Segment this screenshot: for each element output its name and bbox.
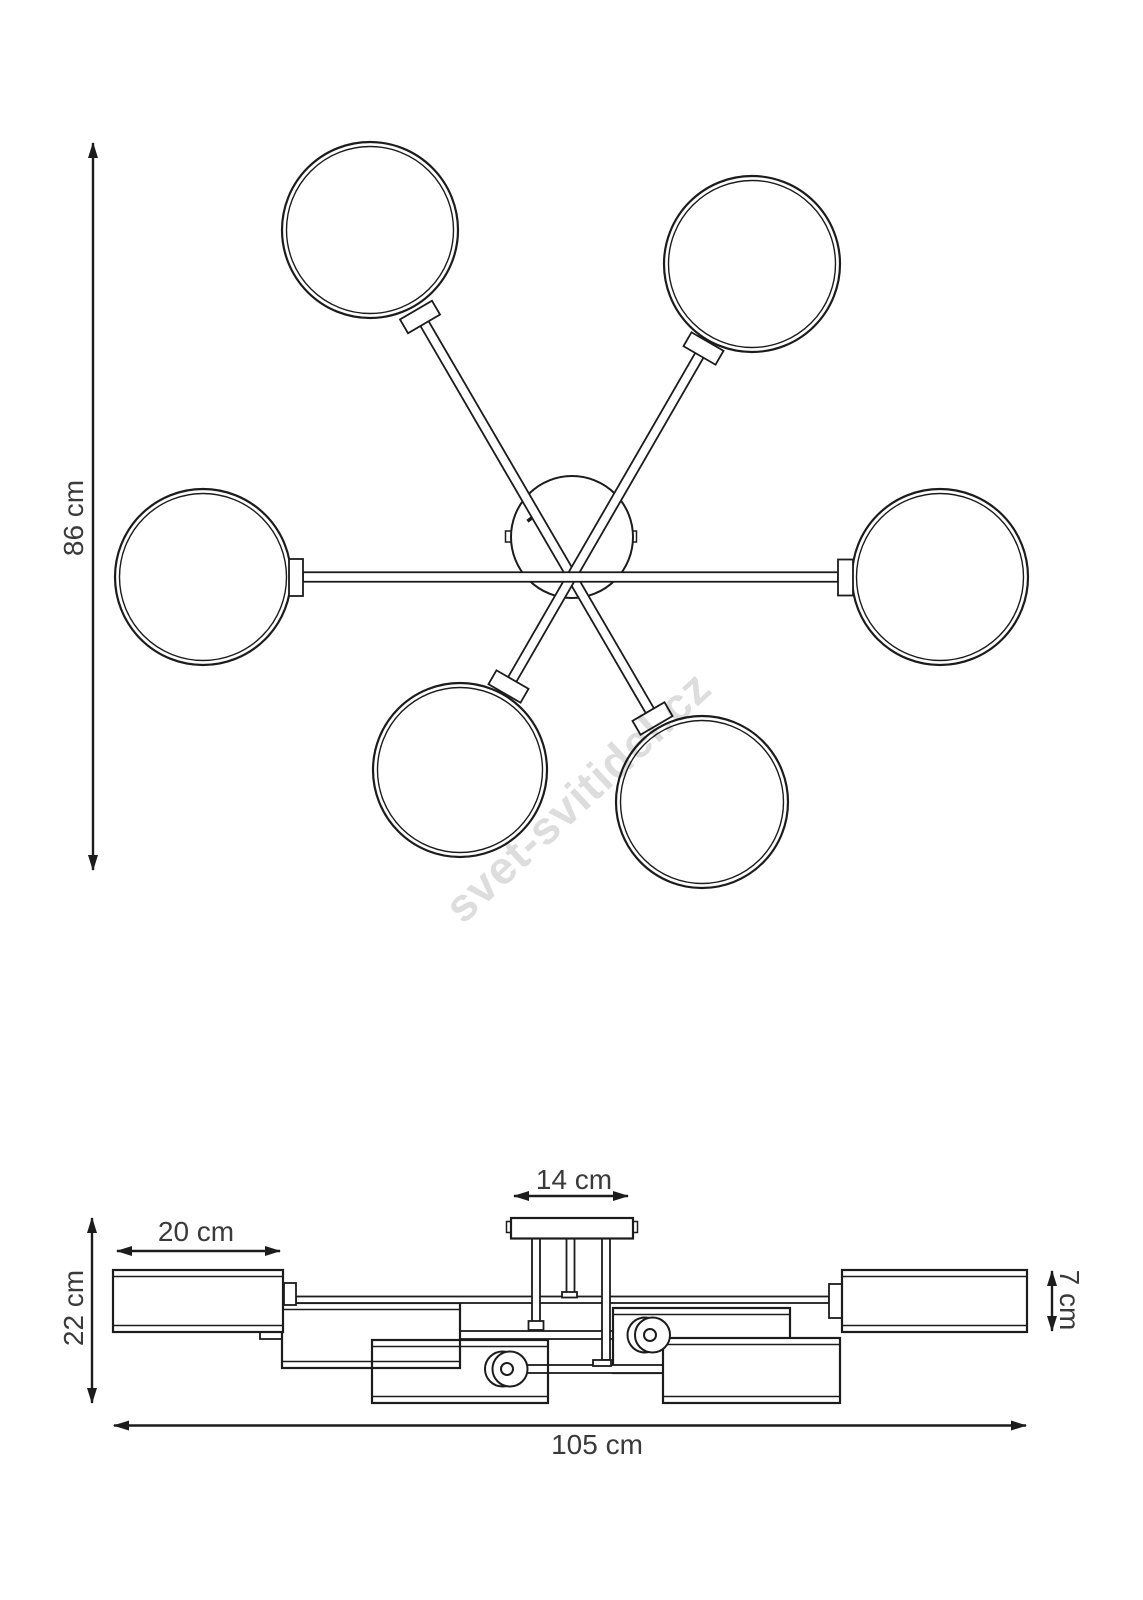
front-rod <box>516 1365 663 1373</box>
dim-overall-height-label: 86 cm <box>58 480 89 556</box>
dim-canopy-width: 14 cm <box>514 1164 628 1196</box>
arm-horizontal <box>303 572 838 582</box>
globe-left <box>115 489 291 665</box>
technical-drawing: 86 cm 22 cm 20 cm 14 cm 7 cm 105 cm svet… <box>0 0 1143 1600</box>
dim-side-height-label: 22 cm <box>58 1270 89 1346</box>
dim-overall-width: 105 cm <box>114 1426 1026 1461</box>
canopy-plate <box>511 1218 633 1239</box>
stem-middle <box>567 1238 575 1293</box>
dim-shade-width: 20 cm <box>117 1216 280 1251</box>
ceiling-canopy <box>507 1218 638 1239</box>
stem-right <box>602 1238 610 1360</box>
dim-shade-height-label: 7 cm <box>1054 1270 1085 1331</box>
stem-middle-foot <box>562 1292 577 1298</box>
stem-right-foot <box>593 1360 611 1366</box>
far-right-shade <box>842 1270 1027 1332</box>
dim-overall-height: 86 cm <box>58 143 93 870</box>
far-left-shade <box>113 1270 283 1332</box>
socket-left <box>289 559 303 596</box>
joint-back-right <box>628 1318 671 1353</box>
globe-right <box>852 489 1028 665</box>
dim-side-height: 22 cm <box>58 1218 92 1403</box>
globe-top-left <box>282 142 458 318</box>
drawing-page: 86 cm 22 cm 20 cm 14 cm 7 cm 105 cm svet… <box>0 0 1143 1600</box>
dim-canopy-width-label: 14 cm <box>536 1164 612 1195</box>
globe-top-right <box>664 176 840 352</box>
side-view <box>113 1218 1027 1403</box>
dim-overall-width-label: 105 cm <box>551 1429 643 1460</box>
stem-left <box>532 1238 540 1322</box>
joint-front-left <box>485 1352 528 1387</box>
dim-shade-width-label: 20 cm <box>158 1216 234 1247</box>
front-right-shade <box>663 1338 840 1403</box>
side-socket-left <box>284 1283 296 1305</box>
socket-right <box>838 560 853 596</box>
dim-shade-height: 7 cm <box>1052 1270 1085 1331</box>
stem-left-foot <box>529 1321 544 1330</box>
side-socket-right <box>829 1284 842 1318</box>
